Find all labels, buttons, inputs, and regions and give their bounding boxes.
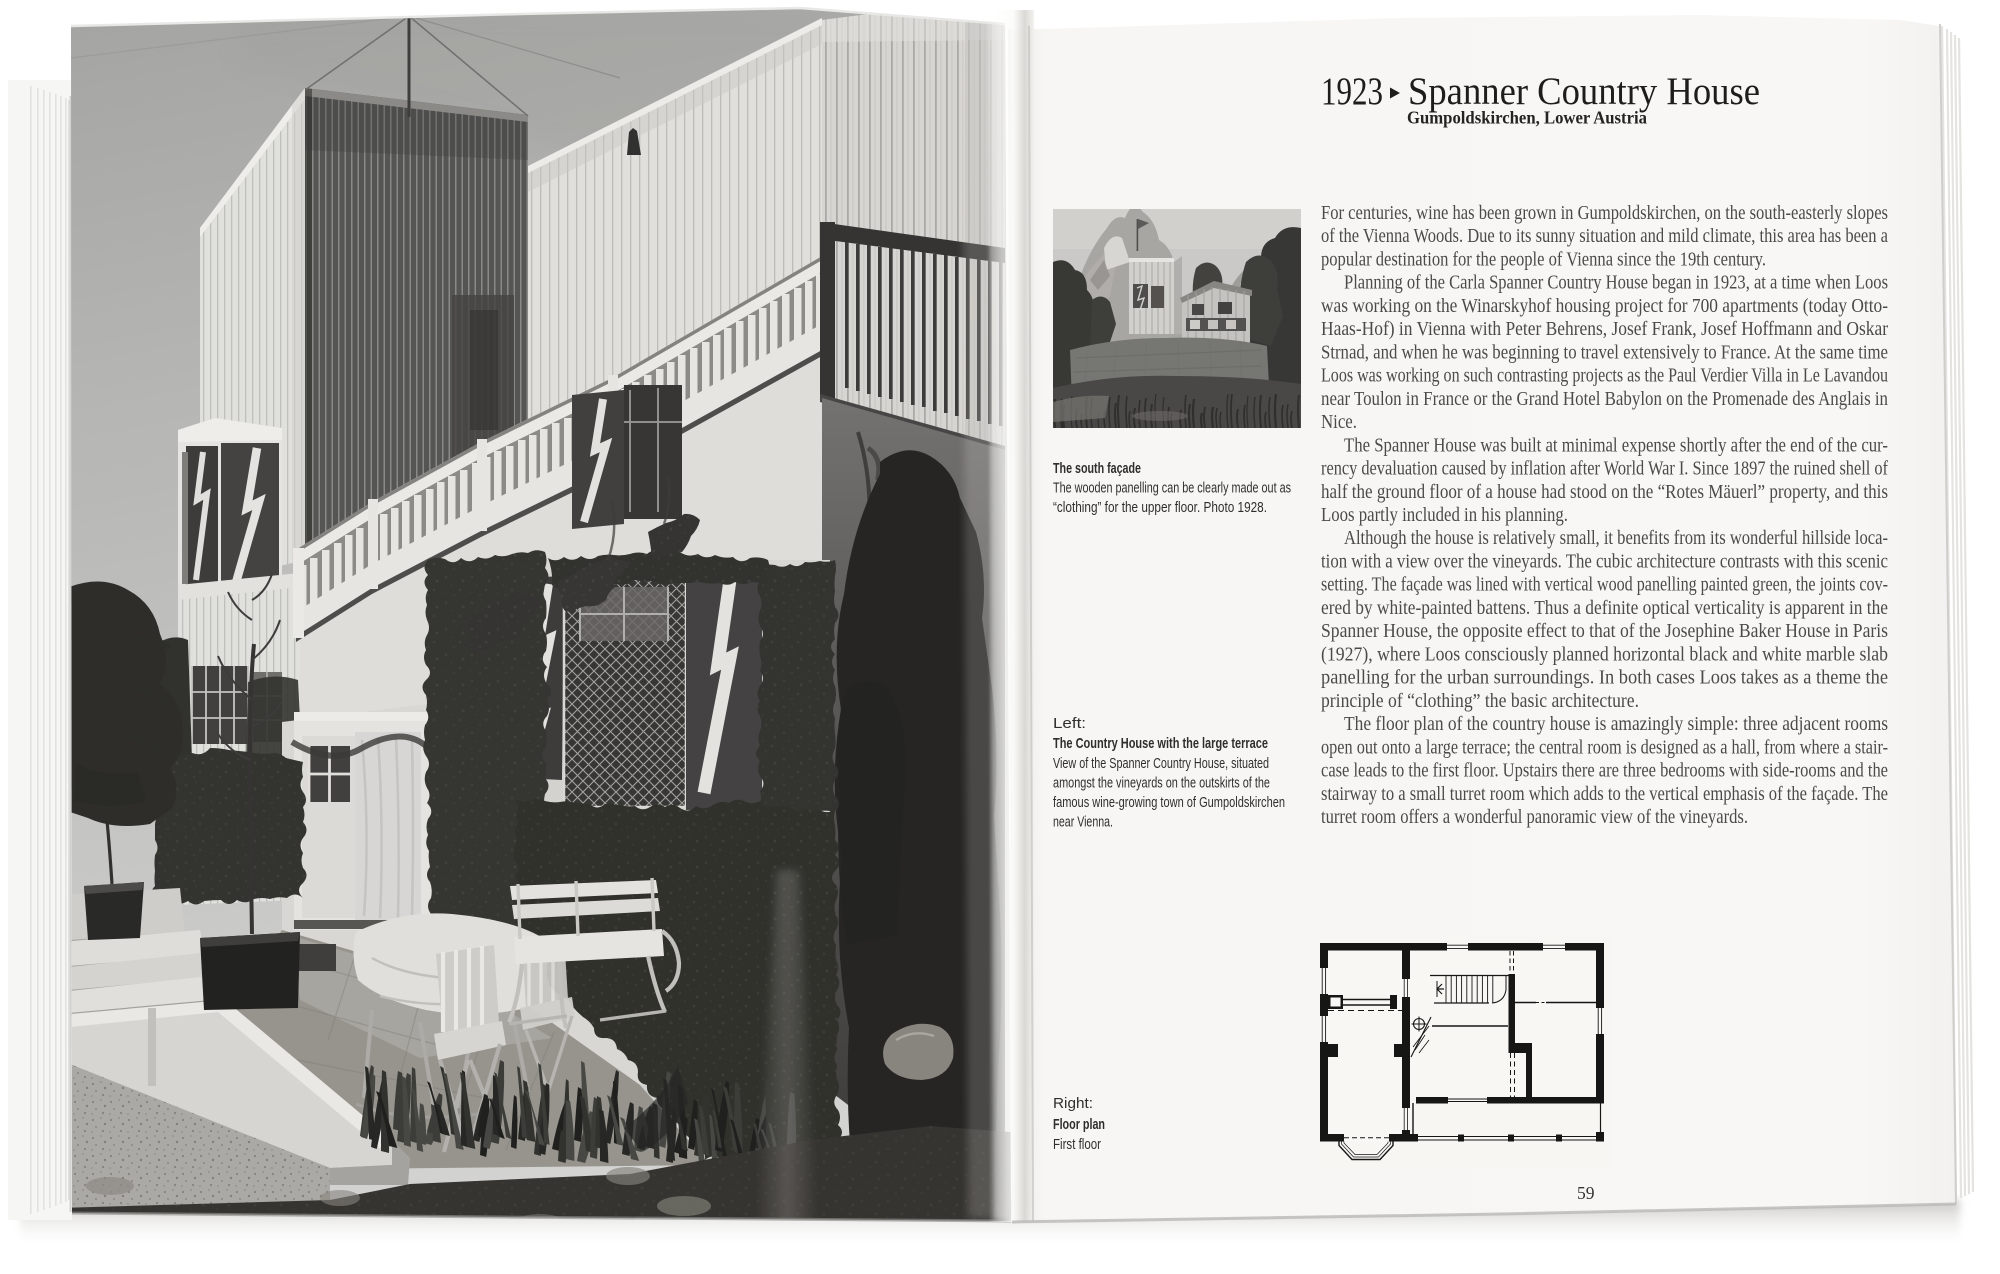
svg-text:View of the Spanner Country Ho: View of the Spanner Country House, situa…	[1053, 755, 1269, 772]
svg-text:The south façade: The south façade	[1053, 460, 1141, 477]
svg-text:First floor: First floor	[1053, 1136, 1101, 1153]
svg-text:open out onto a large terrace;: open out onto a large terrace; the centr…	[1321, 736, 1888, 758]
svg-text:The Spanner House was built at: The Spanner House was built at minimal e…	[1344, 434, 1888, 456]
svg-text:The Country House with the lar: The Country House with the large terrace	[1053, 735, 1268, 752]
svg-text:59: 59	[1577, 1183, 1595, 1203]
svg-text:For centuries, wine has been g: For centuries, wine has been grown in Gu…	[1321, 202, 1888, 224]
svg-text:Loos was working on such contr: Loos was working on such contrasting pro…	[1321, 365, 1888, 387]
svg-text:amongst the vineyards on the o: amongst the vineyards on the outskirts o…	[1053, 775, 1270, 792]
svg-text:ered by white-painted battens.: ered by white-painted battens. Thus a de…	[1321, 597, 1888, 619]
svg-text:Haas-Hof) in Vienna with Peter: Haas-Hof) in Vienna with Peter Behrens, …	[1321, 318, 1888, 340]
svg-text:tion with a view over the vine: tion with a view over the vineyards. The…	[1321, 551, 1888, 573]
svg-text:half the ground floor of a hou: half the ground floor of a house had sto…	[1321, 481, 1888, 503]
svg-text:The floor plan of the country: The floor plan of the country house is a…	[1344, 713, 1888, 735]
svg-text:(1927), where Loos consciously: (1927), where Loos consciously planned h…	[1321, 643, 1888, 665]
svg-text:near Vienna.: near Vienna.	[1053, 814, 1113, 831]
svg-text:was working on the Winarskyhof: was working on the Winarskyhof housing p…	[1321, 295, 1888, 317]
svg-text:Loos partly included in his pl: Loos partly included in his planning.	[1321, 504, 1568, 526]
svg-text:Left:: Left:	[1053, 715, 1086, 732]
svg-text:famous wine-growing town of Gu: famous wine-growing town of Gumpoldskirc…	[1053, 794, 1285, 811]
svg-text:1923: 1923	[1321, 70, 1383, 113]
svg-text:The wooden panelling can be cl: The wooden panelling can be clearly made…	[1053, 480, 1291, 497]
svg-text:Although the house is relative: Although the house is relatively small, …	[1344, 527, 1888, 549]
svg-text:Spanner House, the opposite ef: Spanner House, the opposite effect to th…	[1321, 620, 1888, 642]
svg-text:near Toulon in France or the G: near Toulon in France or the Grand Hotel…	[1321, 388, 1888, 410]
svg-text:Planning of the Carla Spanner: Planning of the Carla Spanner Country Ho…	[1344, 272, 1888, 294]
svg-text:panelling for the urban surrou: panelling for the urban surroundings. In…	[1321, 667, 1888, 689]
svg-text:popular destination for the pe: popular destination for the people of Vi…	[1321, 249, 1766, 271]
svg-text:rency devaluation caused by in: rency devaluation caused by inflation af…	[1321, 458, 1888, 480]
svg-text:setting. The façade was lined: setting. The façade was lined with verti…	[1321, 574, 1888, 596]
svg-text:Strnad, and when he was beginn: Strnad, and when he was beginning to tra…	[1321, 341, 1888, 363]
svg-text:of the Vienna Woods. Due to it: of the Vienna Woods. Due to its sunny si…	[1321, 225, 1888, 247]
svg-text:“clothing” for the upper floor: “clothing” for the upper floor. Photo 19…	[1053, 499, 1267, 516]
svg-text:Right:: Right:	[1053, 1095, 1093, 1112]
svg-text:case leads to the first floor.: case leads to the first floor. Upstairs …	[1321, 760, 1888, 782]
svg-text:Gumpoldskirchen, Lower Austria: Gumpoldskirchen, Lower Austria	[1407, 108, 1647, 128]
svg-text:Floor plan: Floor plan	[1053, 1116, 1105, 1133]
svg-text:turret room offers a wonderful: turret room offers a wonderful panoramic…	[1321, 806, 1748, 828]
svg-text:stairway to a small turret roo: stairway to a small turret room which ad…	[1321, 783, 1888, 805]
svg-text:principle of “clothing” the ba: principle of “clothing” the basic archit…	[1321, 690, 1639, 712]
svg-text:Nice.: Nice.	[1321, 411, 1357, 433]
